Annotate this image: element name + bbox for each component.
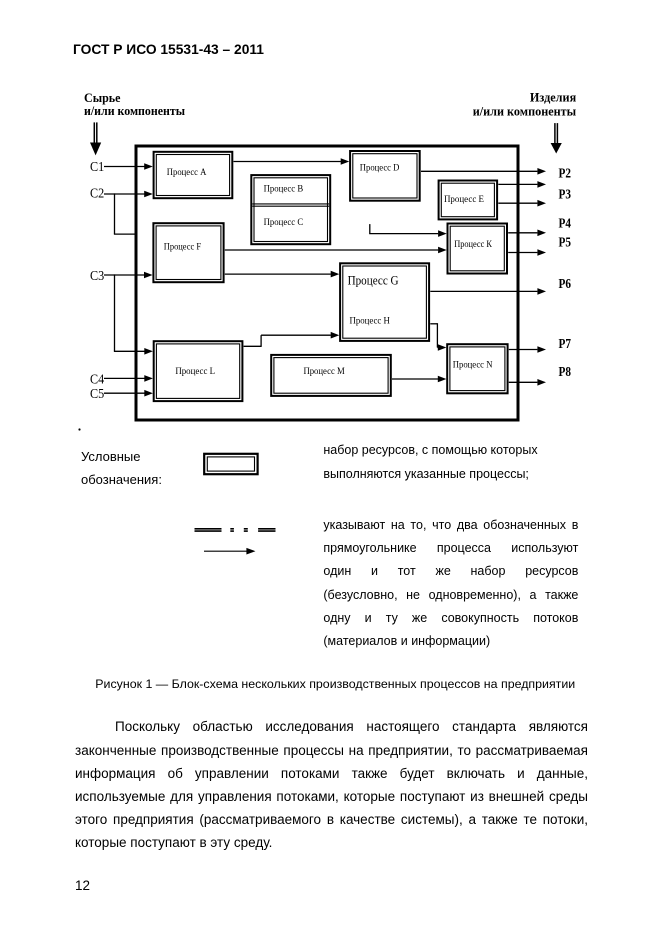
svg-text:P5: P5 (559, 235, 572, 250)
svg-text:C4: C4 (90, 373, 104, 388)
svg-text:Процесс N: Процесс N (453, 359, 493, 369)
svg-text:P4: P4 (559, 217, 572, 232)
svg-text:C5: C5 (90, 387, 104, 402)
svg-text:Процесс Н: Процесс Н (350, 317, 390, 327)
svg-text:P6: P6 (559, 277, 572, 292)
svg-text:C1: C1 (90, 160, 104, 175)
svg-text:Изделия: Изделия (530, 90, 576, 105)
svg-text:P2: P2 (559, 166, 572, 181)
svg-text:C3: C3 (90, 269, 104, 284)
svg-text:Процесс D: Процесс D (360, 163, 400, 173)
svg-text:Процесс C: Процесс C (264, 217, 304, 227)
svg-text:Процесс A: Процесс A (167, 167, 207, 177)
svg-text:Процесс F: Процесс F (164, 242, 201, 252)
svg-text:и/или компоненты: и/или компоненты (473, 104, 577, 119)
svg-text:Процесс L: Процесс L (175, 366, 215, 376)
svg-text:Процесс G: Процесс G (348, 274, 399, 288)
svg-text:Процесс К: Процесс К (454, 239, 493, 249)
svg-text:и/или компоненты: и/или компоненты (84, 103, 185, 118)
svg-text:P3: P3 (559, 188, 572, 203)
svg-text:Процесс М: Процесс М (303, 366, 344, 376)
svg-text:Процесс Е: Процесс Е (444, 194, 485, 204)
svg-text:C2: C2 (90, 187, 104, 202)
svg-text:P8: P8 (559, 365, 572, 380)
svg-text:Процесс B: Процесс B (264, 183, 304, 193)
svg-text:P7: P7 (559, 337, 572, 352)
